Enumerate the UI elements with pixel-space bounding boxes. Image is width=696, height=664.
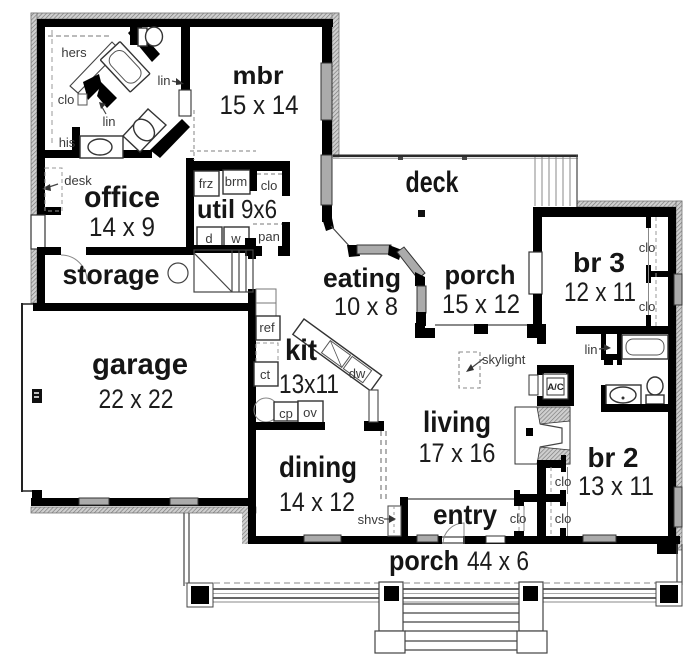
svg-text:cp: cp (279, 406, 293, 421)
svg-text:9x6: 9x6 (241, 194, 277, 224)
svg-text:dw: dw (349, 366, 366, 381)
svg-text:ref: ref (259, 320, 275, 335)
svg-text:15 x 14: 15 x 14 (220, 90, 299, 120)
svg-text:w: w (230, 231, 241, 246)
svg-text:frz: frz (199, 176, 213, 191)
svg-text:12 x 11: 12 x 11 (564, 277, 636, 307)
svg-text:pan: pan (258, 229, 280, 244)
svg-text:kit: kit (285, 334, 317, 367)
svg-text:44 x 6: 44 x 6 (467, 546, 529, 576)
svg-text:util: util (197, 194, 235, 224)
svg-text:office: office (84, 181, 160, 214)
svg-text:garage: garage (92, 348, 188, 381)
svg-text:ct: ct (260, 367, 271, 382)
svg-text:mbr: mbr (233, 62, 284, 90)
svg-text:lin: lin (102, 114, 115, 129)
svg-text:shvs: shvs (358, 512, 385, 527)
svg-text:porch: porch (389, 545, 459, 576)
svg-text:porch: porch (445, 260, 516, 290)
svg-text:living: living (423, 406, 491, 439)
svg-text:clo: clo (555, 474, 572, 489)
svg-text:15 x 12: 15 x 12 (442, 289, 520, 319)
svg-text:deck: deck (406, 166, 459, 199)
svg-text:entry: entry (433, 499, 497, 530)
svg-text:skylight: skylight (482, 352, 526, 367)
svg-text:br 3: br 3 (573, 247, 625, 278)
svg-text:eating: eating (323, 263, 401, 293)
svg-text:13 x 11: 13 x 11 (578, 471, 654, 501)
svg-text:clo: clo (639, 299, 656, 314)
svg-text:lin: lin (584, 342, 597, 357)
svg-text:14 x 12: 14 x 12 (279, 487, 355, 517)
svg-text:ov: ov (303, 405, 317, 420)
svg-text:dining: dining (279, 451, 357, 484)
svg-text:22 x 22: 22 x 22 (99, 384, 174, 414)
svg-text:13x11: 13x11 (279, 369, 339, 399)
svg-text:d: d (205, 231, 212, 246)
svg-text:clo: clo (639, 240, 656, 255)
svg-text:clo: clo (510, 511, 527, 526)
svg-text:14 x 9: 14 x 9 (89, 212, 155, 242)
svg-text:br 2: br 2 (588, 442, 639, 473)
svg-text:his: his (59, 135, 76, 150)
svg-text:clo: clo (58, 92, 75, 107)
svg-text:storage: storage (63, 259, 160, 290)
svg-text:10 x 8: 10 x 8 (334, 293, 398, 321)
svg-text:lin: lin (157, 73, 170, 88)
svg-text:17 x 16: 17 x 16 (419, 438, 496, 468)
svg-text:hers: hers (61, 45, 87, 60)
svg-text:A/C: A/C (547, 382, 564, 393)
svg-text:clo: clo (555, 511, 572, 526)
svg-text:clo: clo (261, 178, 278, 193)
svg-text:brm: brm (225, 174, 247, 189)
